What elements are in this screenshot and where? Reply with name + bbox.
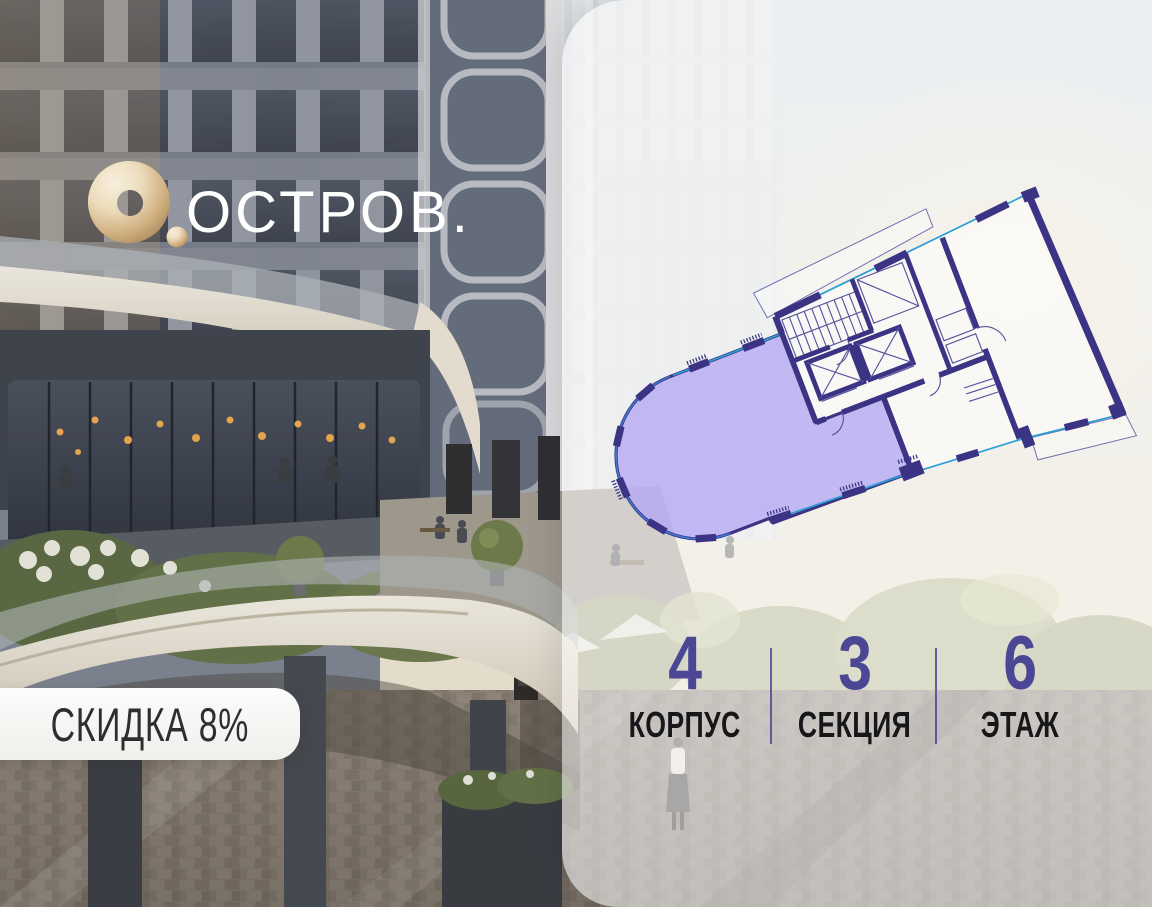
stat-etazh-label: ЭТАЖ [981,704,1059,746]
stat-etazh-value: 6 [1003,628,1037,700]
floor-plan-panel: 4 КОРПУС 3 СЕКЦИЯ 6 ЭТАЖ [562,0,1152,907]
stat-korpus: 4 КОРПУС [595,628,775,746]
stat-korpus-value: 4 [668,628,702,700]
stat-etazh: 6 ЭТАЖ [930,628,1110,746]
promo-card: 4 КОРПУС 3 СЕКЦИЯ 6 ЭТАЖ [0,0,1152,907]
brand-wordmark: ОСТРОВ. [186,184,472,242]
brand-logo: ОСТРОВ. [84,156,194,256]
stat-korpus-label: КОРПУС [629,704,741,746]
stat-sektsiya-label: СЕКЦИЯ [798,704,911,746]
discount-badge: СКИДКА 8% [0,688,300,760]
discount-label: СКИДКА 8% [51,697,249,752]
stat-sektsiya: 3 СЕКЦИЯ [765,628,945,746]
unit-stats: 4 КОРПУС 3 СЕКЦИЯ 6 ЭТАЖ [562,628,1152,758]
floor-plan [562,0,1152,907]
gold-ring-icon [84,156,194,256]
stat-sektsiya-value: 3 [838,628,872,700]
